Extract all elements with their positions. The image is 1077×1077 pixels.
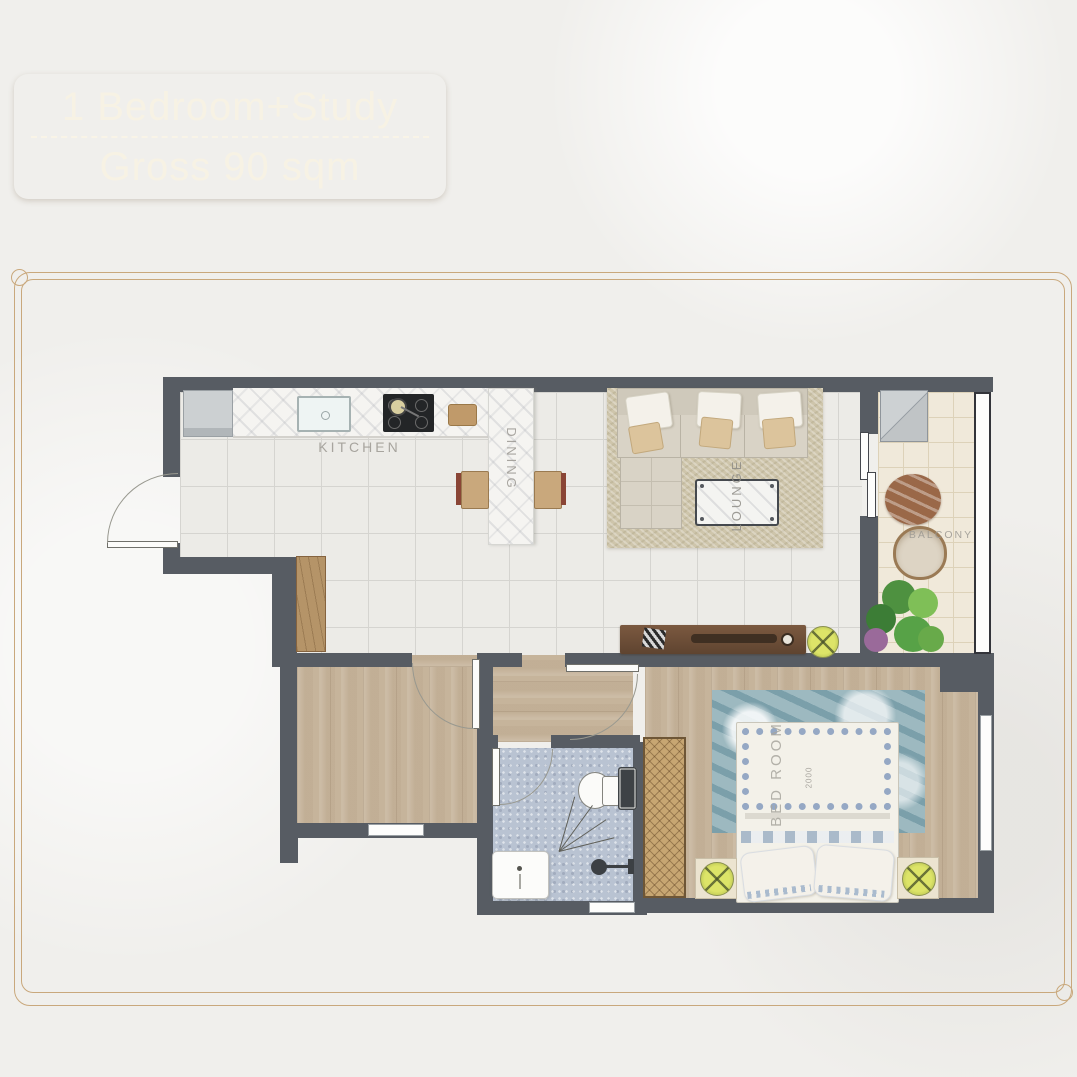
cutting-board xyxy=(448,404,477,426)
wall-living-bottom-b xyxy=(477,653,522,667)
bedroom-window xyxy=(980,715,992,851)
sink-drain xyxy=(321,411,330,420)
nightstand-left xyxy=(695,858,737,899)
balcony-ac-panel xyxy=(880,390,928,442)
fridge xyxy=(183,390,233,437)
wall-left-vertical xyxy=(272,557,297,667)
table-corner-dot xyxy=(700,484,704,488)
balcony-label: BALCONY xyxy=(902,530,980,541)
bathroom-window xyxy=(589,902,635,913)
lounge-label: LOUNGE xyxy=(730,450,744,540)
table-corner-dot xyxy=(770,517,774,521)
kitchen-sink xyxy=(297,396,351,432)
balcony-plant xyxy=(864,580,950,660)
table-lamp xyxy=(700,862,734,896)
bed-pillow xyxy=(739,845,819,904)
bed-pattern-band xyxy=(741,831,894,843)
table-lamp xyxy=(902,862,936,896)
burner xyxy=(388,416,401,429)
sofa-cushion xyxy=(628,421,664,454)
wall-bath-top-stub xyxy=(492,735,498,748)
bedroom-hall-door-leaf xyxy=(566,664,639,672)
dining-label: DINING xyxy=(504,414,518,504)
table-corner-dot xyxy=(700,517,704,521)
study-window xyxy=(368,824,424,836)
sofa-cushion xyxy=(699,416,734,449)
burner xyxy=(415,399,428,412)
toilet-tank xyxy=(618,767,637,810)
chair-back xyxy=(456,473,461,505)
basin-drain xyxy=(517,866,522,871)
bed-fold-line xyxy=(745,813,890,819)
sofa-cushion xyxy=(762,417,796,450)
bed-pillow xyxy=(813,844,895,903)
bed-dimension-label: 2000 xyxy=(806,758,815,798)
balcony-sliding-door-pane-2 xyxy=(867,472,876,518)
plant-foliage xyxy=(908,588,938,618)
pillow-trim xyxy=(747,884,811,899)
bed xyxy=(736,722,899,903)
basin-slit xyxy=(519,874,521,889)
entrance-door-swing-arc xyxy=(107,473,178,543)
table-corner-dot xyxy=(770,484,774,488)
kitchen-label: KITCHEN xyxy=(302,440,417,454)
balcony-glass-railing xyxy=(974,392,991,654)
chair-back xyxy=(561,473,566,505)
plant-foliage xyxy=(918,626,944,652)
entry-shoe-cabinet xyxy=(296,556,326,652)
pillow-trim xyxy=(818,885,884,898)
sofa-chaise xyxy=(620,457,682,529)
bed-ornate-border xyxy=(742,728,891,810)
dining-chair-left xyxy=(461,471,489,509)
wall-bath-top xyxy=(551,735,640,748)
shower-bracket xyxy=(628,859,634,874)
page: { "badge": { "title": "1 Bedroom+Study",… xyxy=(0,0,1077,1077)
bathroom-door-leaf xyxy=(492,748,500,806)
wall-study-left xyxy=(280,661,297,841)
cooktop xyxy=(383,394,434,432)
floor-plan: KITCHEN DINING LOUNGE BALCONY BED ROOM 2… xyxy=(0,0,1077,1077)
wall-left-upper xyxy=(163,377,180,477)
console-groove xyxy=(691,634,777,643)
plant-flowers xyxy=(864,628,888,652)
tv-console xyxy=(620,625,806,654)
nightstand-right xyxy=(897,857,939,899)
wardrobe xyxy=(643,737,686,898)
console-knob xyxy=(781,633,794,646)
burner xyxy=(415,416,428,429)
wall-living-bottom-a xyxy=(297,653,412,667)
washbasin xyxy=(492,851,549,899)
decor-disc xyxy=(807,626,839,658)
bedroom-label: BED ROOM xyxy=(769,719,785,829)
balcony-table xyxy=(885,474,941,525)
dining-chair-right xyxy=(534,471,562,509)
wall-balcony-divider-top xyxy=(860,392,878,434)
console-decor xyxy=(642,628,666,650)
